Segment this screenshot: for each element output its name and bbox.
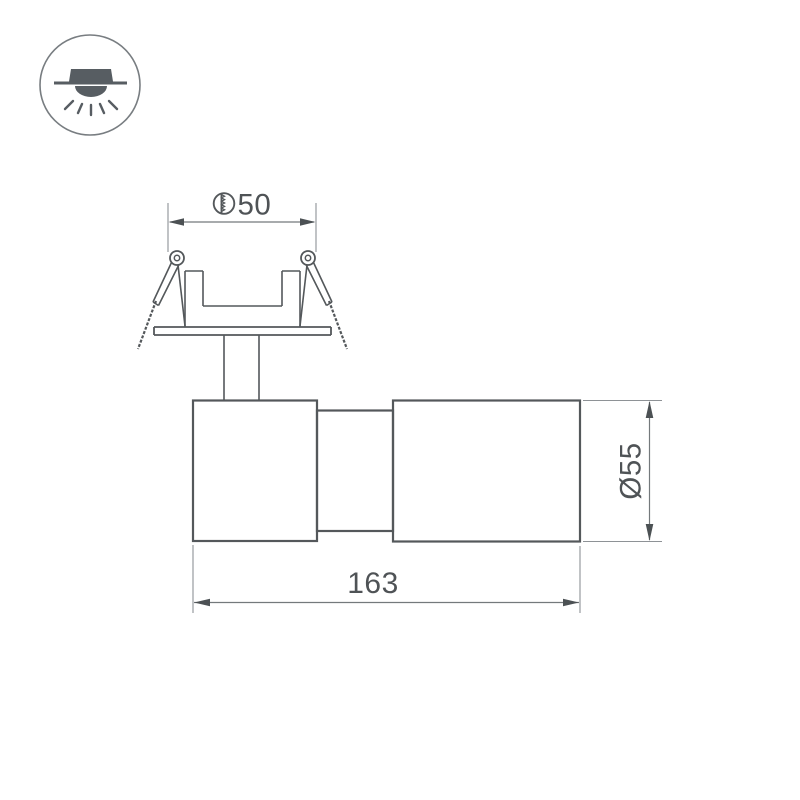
diameter-dimension: Ø55 [583, 401, 662, 542]
drawing-page: 50 Ø55 163 [0, 0, 800, 800]
length-dimension: 163 [193, 545, 580, 613]
spring-wire-left [138, 301, 156, 349]
recessed-mount-icon [40, 35, 140, 135]
diameter-dimension-label: Ø55 [615, 442, 648, 499]
flange [154, 327, 331, 335]
drill-hole-symbol-icon [214, 193, 235, 214]
body-rear [193, 401, 317, 542]
mounting-ring [185, 271, 300, 327]
cutout-dimension-label: 50 [238, 189, 272, 222]
technical-drawing: 50 Ø55 163 [0, 0, 800, 800]
icon-ring [40, 35, 140, 135]
body-head [393, 401, 580, 542]
length-dimension-label: 163 [347, 567, 399, 600]
lamp-body [193, 401, 580, 542]
stem [224, 335, 259, 400]
body-neck [317, 411, 393, 532]
fixture-drawing [138, 251, 580, 542]
downlight-body-icon [69, 69, 113, 82]
spring-wire-right [329, 301, 347, 349]
cutout-dimension: 50 [168, 189, 316, 253]
